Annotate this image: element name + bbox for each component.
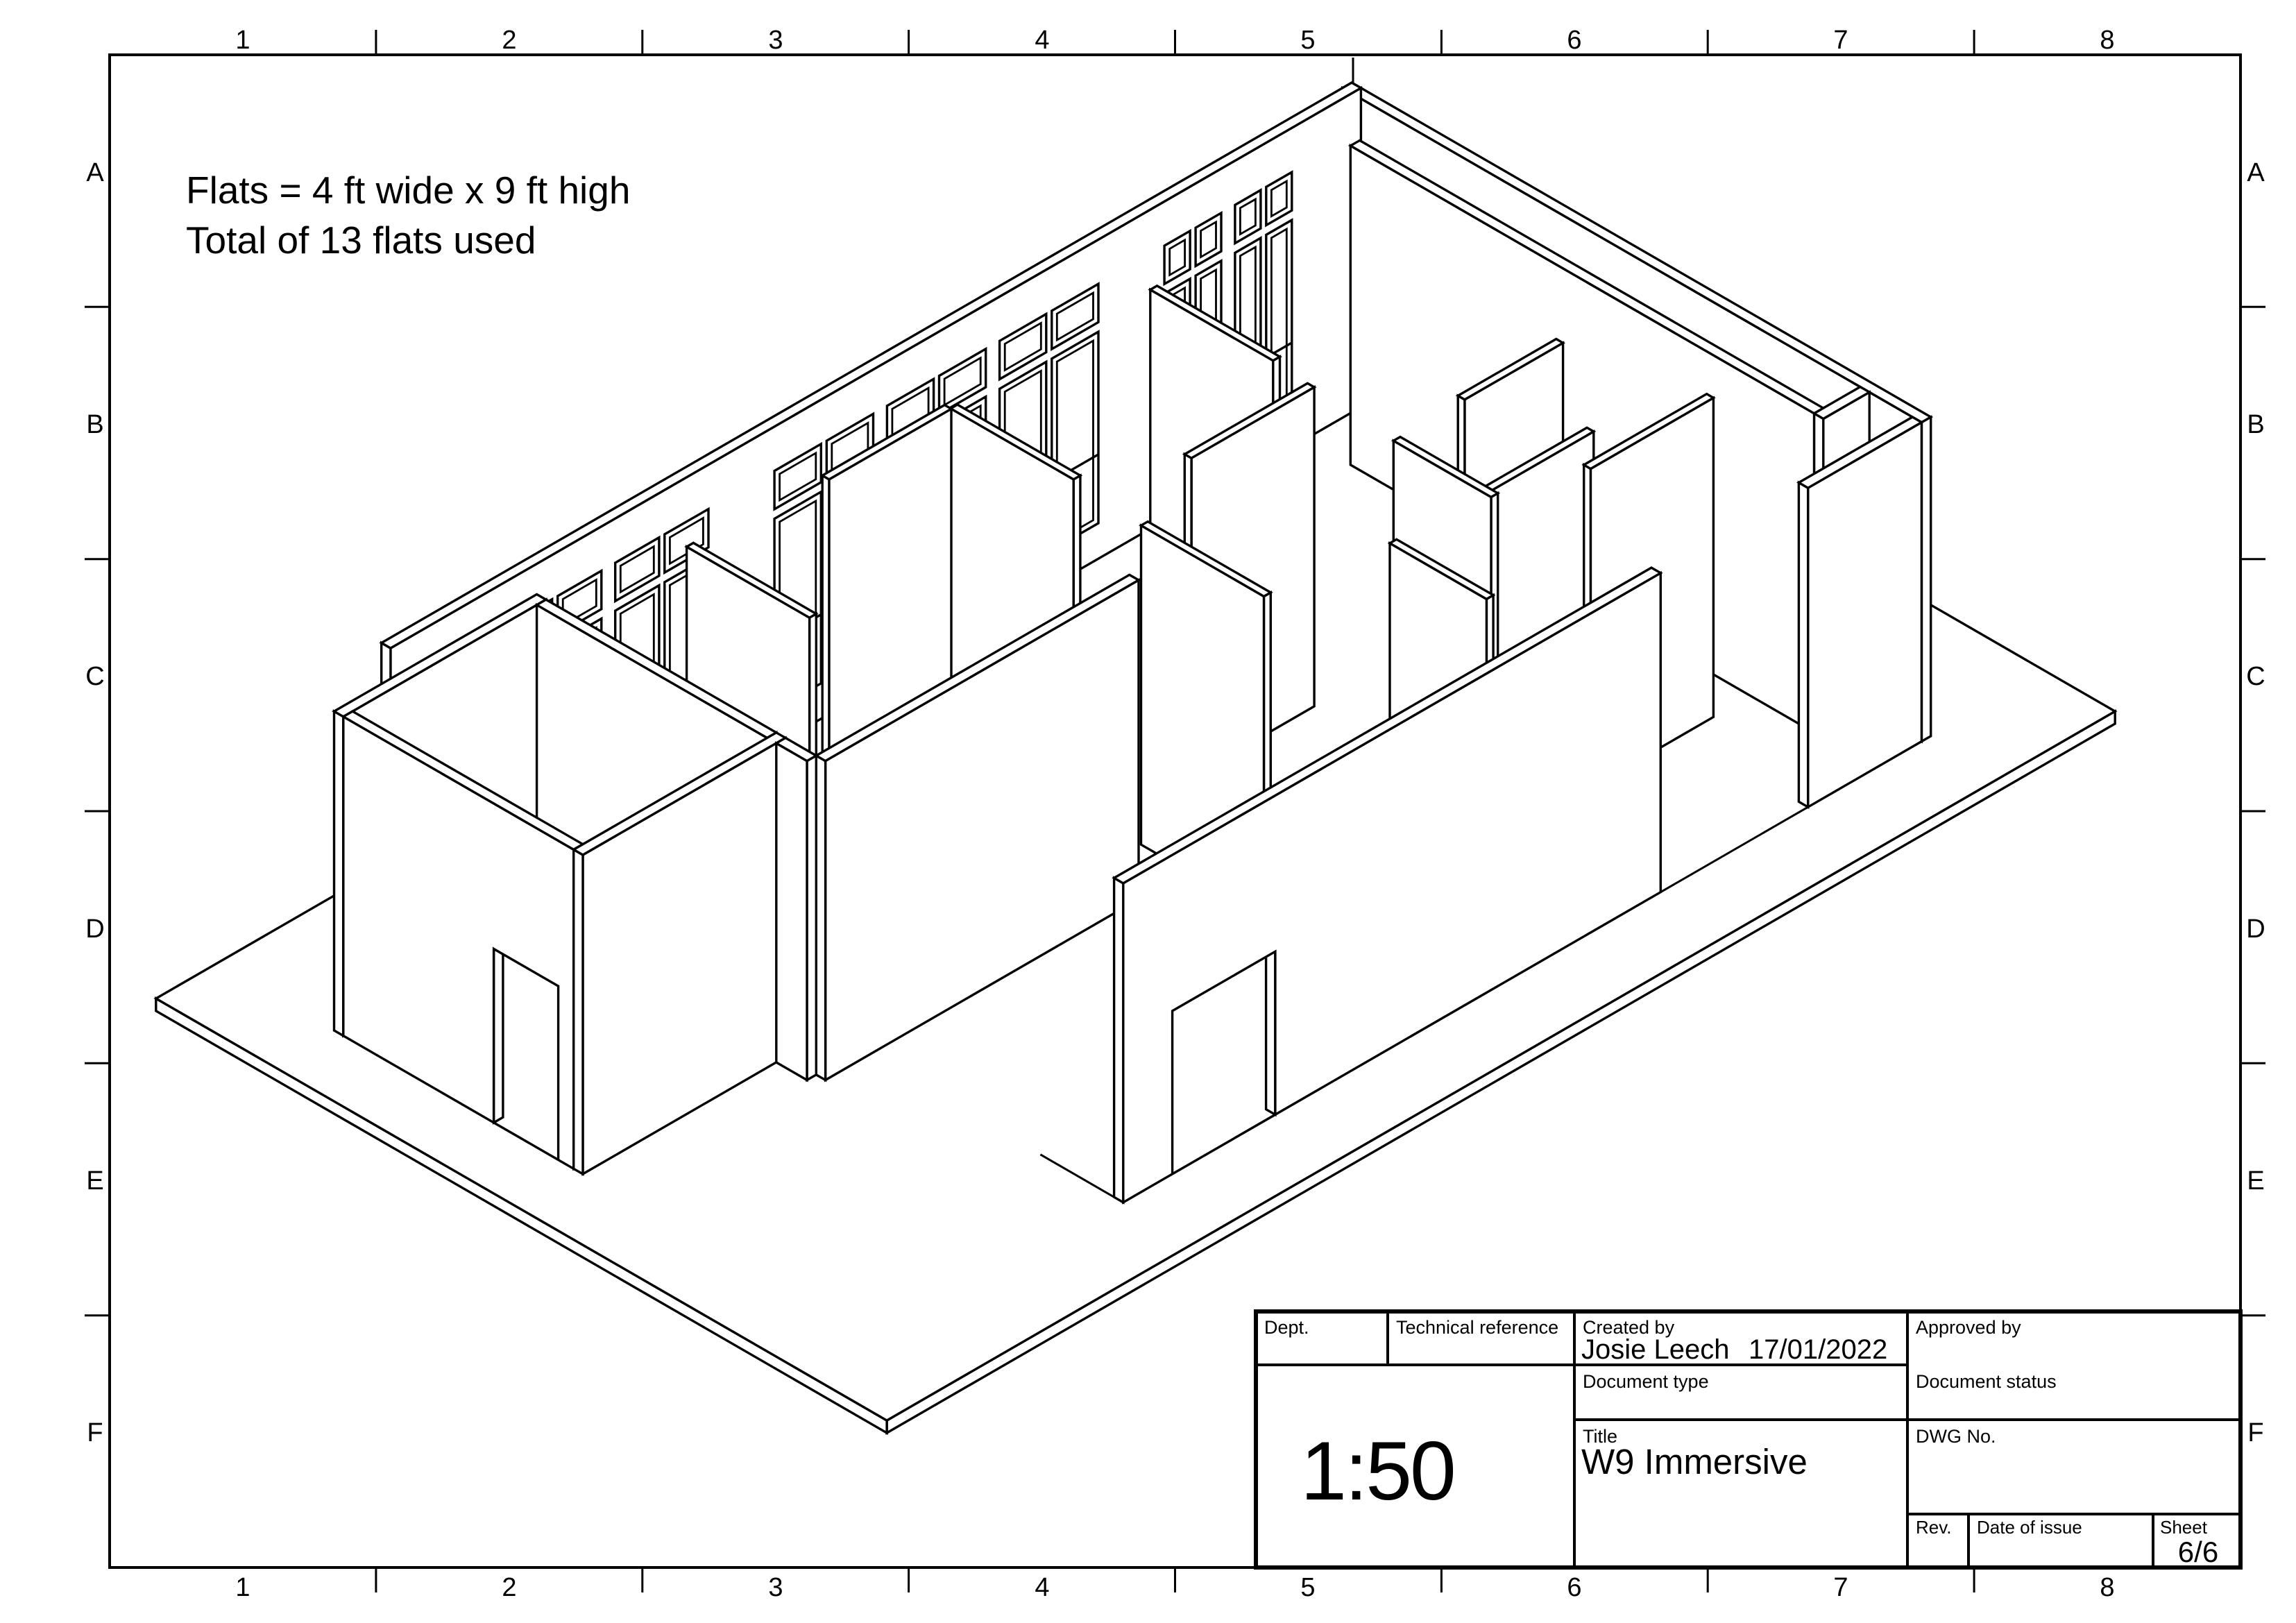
svg-text:C: C bbox=[85, 662, 104, 691]
svg-text:A: A bbox=[2247, 158, 2265, 187]
svg-text:5: 5 bbox=[1300, 26, 1315, 55]
svg-text:W9 Immersive: W9 Immersive bbox=[1581, 1442, 1808, 1481]
svg-text:Rev.: Rev. bbox=[1916, 1517, 1952, 1538]
svg-text:6: 6 bbox=[1567, 1573, 1581, 1602]
svg-text:Dept.: Dept. bbox=[1264, 1317, 1309, 1338]
svg-text:1:50: 1:50 bbox=[1300, 1425, 1454, 1518]
svg-text:4: 4 bbox=[1035, 1573, 1049, 1602]
svg-text:Technical reference: Technical reference bbox=[1396, 1317, 1558, 1338]
svg-text:Approved by: Approved by bbox=[1916, 1317, 2021, 1338]
svg-text:2: 2 bbox=[502, 1573, 516, 1602]
svg-text:7: 7 bbox=[1833, 26, 1848, 55]
svg-text:1: 1 bbox=[235, 1573, 250, 1602]
svg-text:17/01/2022: 17/01/2022 bbox=[1749, 1334, 1887, 1365]
svg-text:Document status: Document status bbox=[1916, 1371, 2057, 1392]
svg-text:F: F bbox=[87, 1418, 103, 1447]
svg-text:B: B bbox=[2247, 410, 2264, 439]
svg-text:3: 3 bbox=[768, 26, 783, 55]
svg-text:5: 5 bbox=[1300, 1573, 1315, 1602]
svg-text:8: 8 bbox=[2100, 1573, 2114, 1602]
svg-text:D: D bbox=[85, 915, 104, 944]
svg-text:Flats = 4 ft wide x 9 ft high: Flats = 4 ft wide x 9 ft high bbox=[186, 169, 630, 212]
svg-text:Total of 13 flats used: Total of 13 flats used bbox=[186, 219, 536, 262]
svg-text:6: 6 bbox=[1567, 26, 1581, 55]
svg-text:3: 3 bbox=[768, 1573, 783, 1602]
svg-text:E: E bbox=[86, 1166, 103, 1196]
svg-text:Sheet: Sheet bbox=[2160, 1517, 2208, 1538]
svg-text:8: 8 bbox=[2100, 26, 2114, 55]
svg-text:1: 1 bbox=[235, 26, 250, 55]
svg-text:DWG No.: DWG No. bbox=[1916, 1426, 1996, 1447]
svg-text:6/6: 6/6 bbox=[2178, 1536, 2218, 1568]
svg-text:2: 2 bbox=[502, 26, 516, 55]
svg-text:F: F bbox=[2247, 1418, 2263, 1447]
svg-text:Document type: Document type bbox=[1583, 1371, 1709, 1392]
svg-text:Date of issue: Date of issue bbox=[1977, 1517, 2082, 1538]
svg-text:E: E bbox=[2247, 1166, 2264, 1196]
svg-text:A: A bbox=[86, 158, 104, 187]
svg-text:C: C bbox=[2246, 662, 2265, 691]
svg-text:7: 7 bbox=[1833, 1573, 1848, 1602]
svg-text:B: B bbox=[86, 410, 103, 439]
svg-text:D: D bbox=[2246, 915, 2265, 944]
svg-text:Josie Leech: Josie Leech bbox=[1581, 1334, 1729, 1365]
svg-text:4: 4 bbox=[1035, 26, 1049, 55]
